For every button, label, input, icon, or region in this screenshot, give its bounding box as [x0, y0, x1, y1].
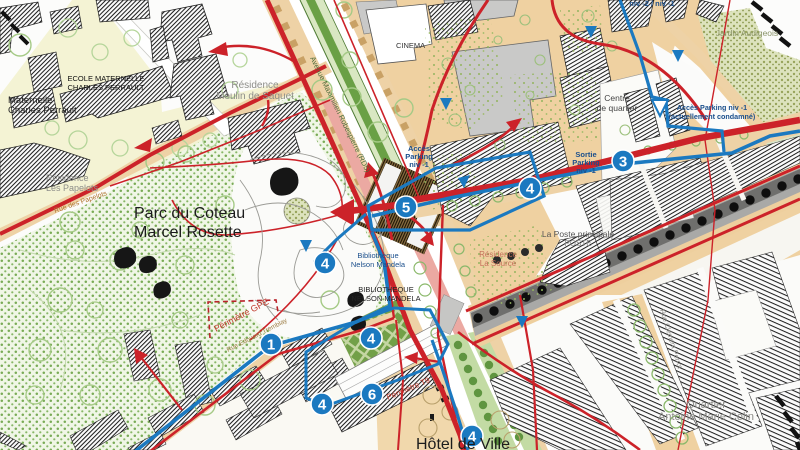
- svg-text:niv -1: niv -1: [409, 160, 429, 169]
- svg-text:NELSON MANDELA: NELSON MANDELA: [351, 294, 420, 303]
- svg-text:Bibliothèque: Bibliothèque: [357, 251, 398, 260]
- svg-text:(actuellement condamné): (actuellement condamné): [669, 112, 756, 121]
- svg-text:4: 4: [526, 181, 535, 198]
- svg-text:de quartier: de quartier: [597, 103, 638, 113]
- svg-text:Résidence: Résidence: [231, 80, 279, 91]
- svg-text:BIBLIOTHEQUE: BIBLIOTHEQUE: [358, 285, 413, 294]
- svg-text:Accès Parking niv -1: Accès Parking niv -1: [677, 103, 747, 112]
- svg-text:Les Papelots: Les Papelots: [46, 183, 99, 193]
- svg-text:1: 1: [267, 337, 275, 354]
- svg-text:Quartier: Quartier: [686, 399, 726, 411]
- svg-text:Jardin Audigeois: Jardin Audigeois: [716, 28, 778, 38]
- svg-text:Parc du Coteau: Parc du Coteau: [134, 205, 245, 222]
- svg-text:niv -2 / niv -1: niv -2 / niv -1: [629, 0, 674, 8]
- svg-text:Moulin de Saquet: Moulin de Saquet: [216, 91, 294, 102]
- svg-text:4: 4: [321, 256, 330, 273]
- svg-text:ECOLE MATERNELLE: ECOLE MATERNELLE: [68, 74, 145, 83]
- svg-text:Marcel Rosette: Marcel Rosette: [134, 224, 242, 241]
- svg-text:6: 6: [368, 387, 376, 404]
- svg-text:La Source: La Source: [480, 259, 517, 268]
- svg-text:4: 4: [367, 331, 376, 348]
- svg-text:4: 4: [318, 397, 327, 414]
- svg-text:3: 3: [619, 154, 627, 171]
- svg-text:Centre: Centre: [604, 93, 630, 103]
- svg-text:Résidence: Résidence: [46, 173, 89, 183]
- svg-text:Résidence: Résidence: [479, 250, 517, 259]
- svg-text:5: 5: [402, 200, 410, 217]
- svg-text:Hôtel de Ville: Hôtel de Ville: [416, 436, 510, 450]
- svg-text:niv -1: niv -1: [576, 166, 596, 175]
- svg-text:Antoine Marie Colin: Antoine Marie Colin: [658, 411, 754, 423]
- svg-text:CINEMA: CINEMA: [396, 41, 425, 50]
- svg-text:CHARLES PERRAULT: CHARLES PERRAULT: [68, 83, 145, 92]
- svg-text:Charles Perrault: Charles Perrault: [8, 105, 77, 116]
- svg-text:Nelson Mandela: Nelson Mandela: [351, 260, 406, 269]
- svg-text:La Poste principale: La Poste principale: [542, 229, 615, 239]
- svg-text:POSTE: POSTE: [564, 239, 591, 248]
